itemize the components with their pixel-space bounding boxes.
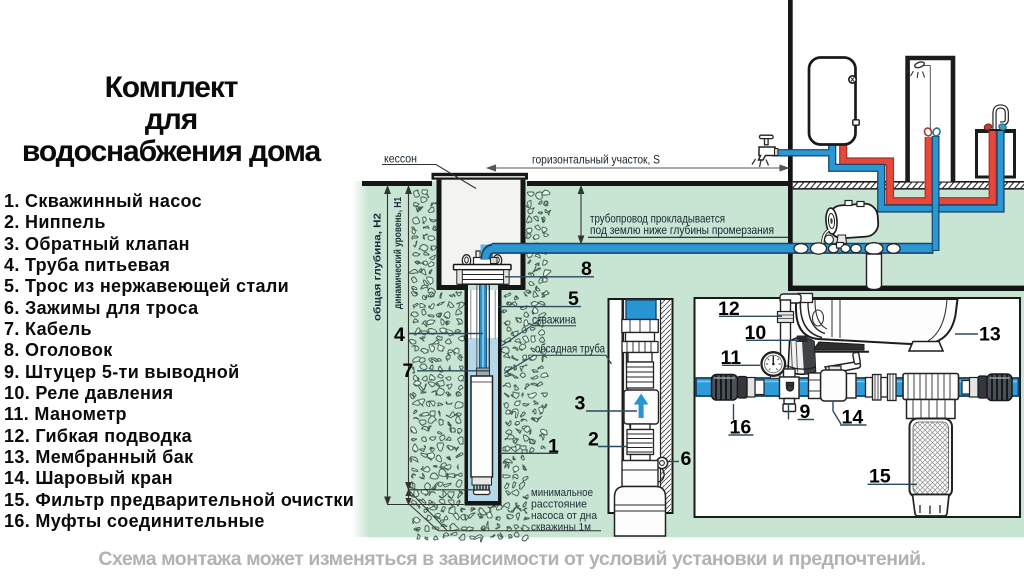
- svg-text:4: 4: [394, 324, 405, 346]
- svg-text:под землю ниже глубины промерз: под землю ниже глубины промерзания: [590, 223, 774, 237]
- svg-text:3: 3: [575, 393, 586, 415]
- svg-text:горизонтальный участок, S: горизонтальный участок, S: [532, 153, 660, 167]
- svg-text:минимальное: минимальное: [531, 487, 593, 499]
- svg-text:обсадная труба: обсадная труба: [535, 342, 605, 356]
- svg-text:расстояние: расстояние: [531, 499, 587, 511]
- svg-text:насоса от дна: насоса от дна: [531, 510, 598, 522]
- svg-text:кессон: кессон: [384, 152, 417, 166]
- svg-text:1: 1: [548, 436, 559, 458]
- svg-text:7: 7: [403, 360, 414, 382]
- svg-text:скважина: скважина: [532, 313, 576, 327]
- svg-text:2: 2: [588, 429, 599, 451]
- svg-text:скважины 1м: скважины 1м: [531, 522, 591, 534]
- svg-text:общая глубина, Н2: общая глубина, Н2: [372, 213, 384, 321]
- svg-text:динамический уровень, Н1: динамический уровень, Н1: [393, 197, 404, 309]
- svg-text:6: 6: [681, 448, 692, 470]
- svg-text:13: 13: [979, 324, 1001, 346]
